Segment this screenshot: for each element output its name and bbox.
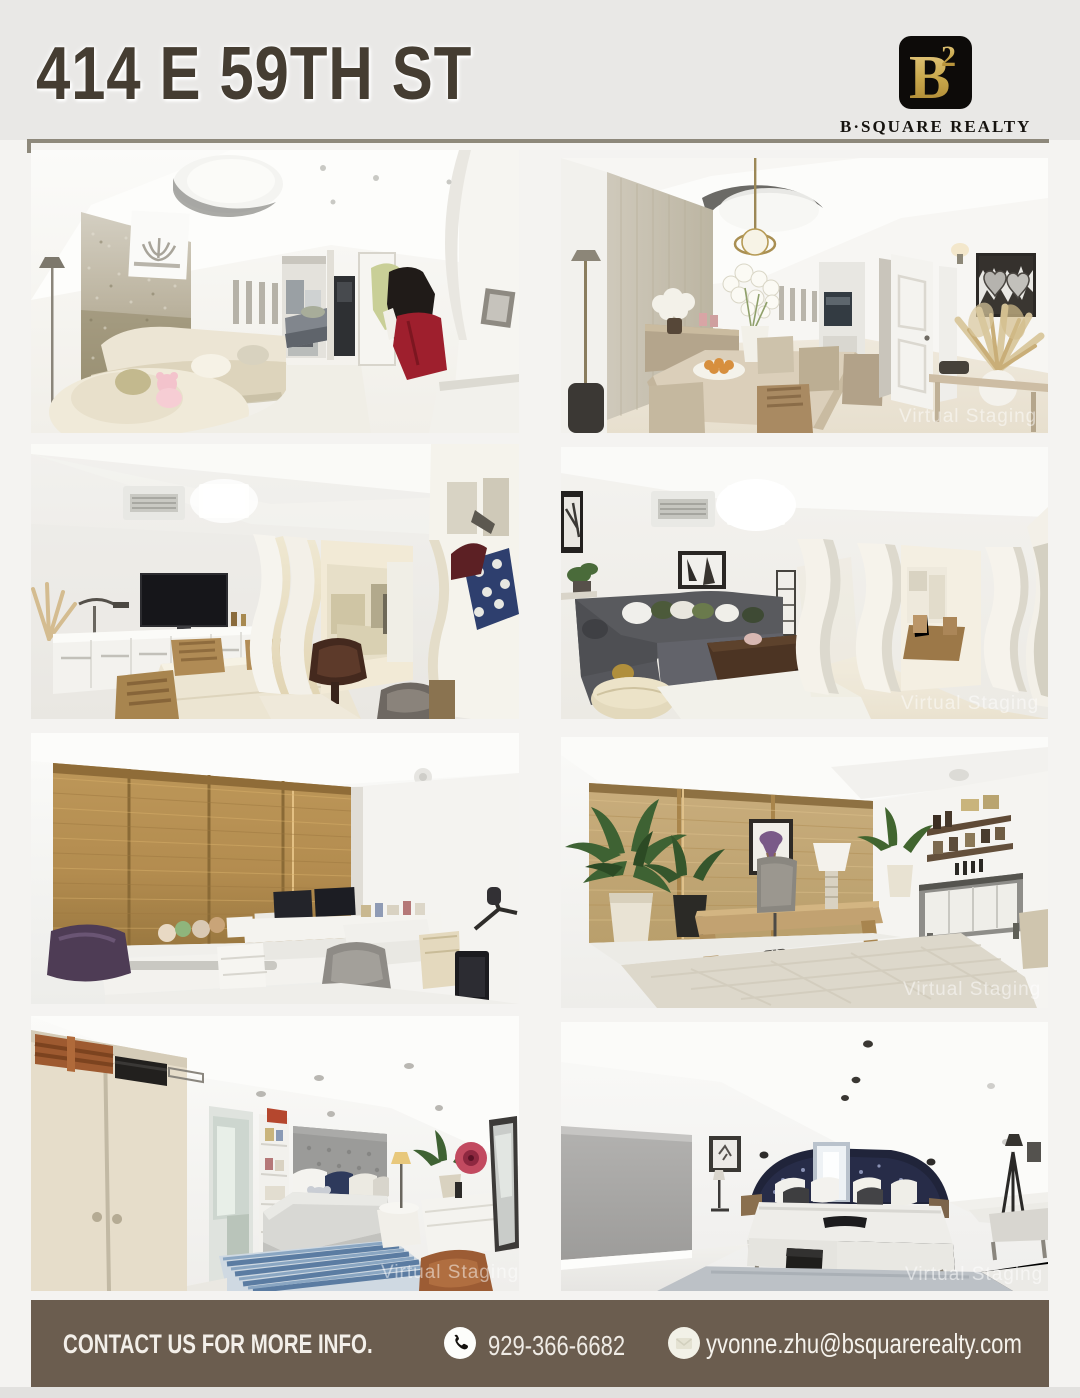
svg-text:Virtual Staging: Virtual Staging bbox=[381, 1262, 519, 1283]
svg-text:Virtual Staging: Virtual Staging bbox=[903, 979, 1041, 1000]
svg-text:2: 2 bbox=[941, 40, 956, 73]
svg-text:Virtual Staging: Virtual Staging bbox=[901, 693, 1039, 714]
svg-text:Virtual Staging: Virtual Staging bbox=[905, 1264, 1043, 1285]
svg-text:Virtual Staging: Virtual Staging bbox=[899, 406, 1037, 427]
